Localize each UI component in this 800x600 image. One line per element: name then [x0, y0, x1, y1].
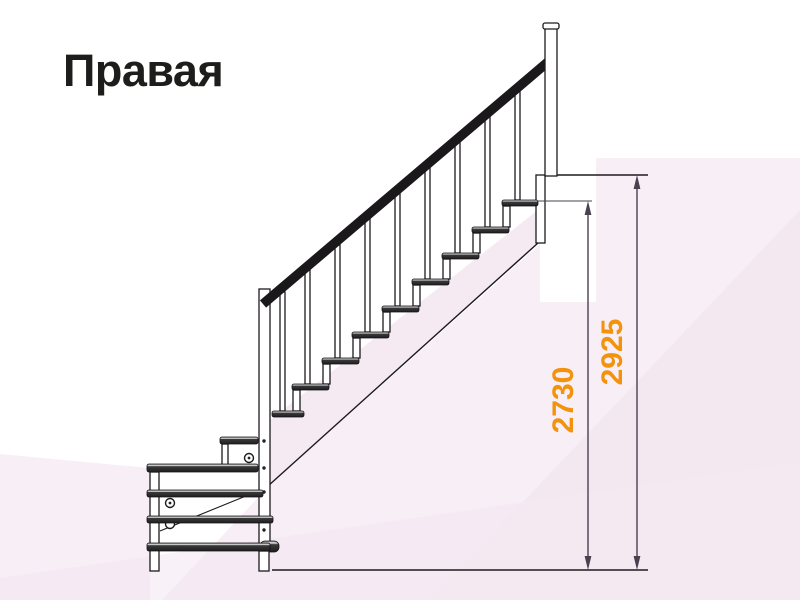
bolt-dot — [169, 502, 172, 505]
step-support — [293, 390, 300, 411]
step-support — [323, 364, 330, 384]
baluster — [395, 193, 400, 306]
tread — [502, 200, 538, 206]
newel-post — [259, 289, 270, 551]
baluster — [455, 142, 460, 253]
tread — [472, 227, 509, 233]
frame-bar — [147, 516, 273, 523]
arrow-up-icon — [585, 201, 592, 215]
step-support — [383, 312, 390, 332]
tread — [147, 490, 263, 497]
leg-post — [259, 551, 269, 571]
dimension-value-2925: 2925 — [596, 319, 629, 386]
tread — [352, 332, 389, 338]
diagram-canvas: 2730 2925 Правая — [0, 0, 800, 600]
fascia-board — [536, 175, 545, 243]
screw-dot — [262, 466, 265, 469]
baluster — [305, 270, 310, 384]
tread — [382, 306, 419, 312]
baluster — [335, 245, 340, 358]
top-newel-post — [545, 26, 557, 176]
tread — [322, 358, 359, 364]
step-support — [473, 233, 480, 253]
baluster — [365, 219, 370, 332]
screw-dot — [262, 439, 265, 442]
step-support — [503, 206, 510, 227]
tread — [442, 253, 479, 259]
dimension-value-2730: 2730 — [547, 367, 580, 434]
tread — [147, 464, 258, 472]
tread — [412, 279, 449, 285]
step-support — [222, 444, 228, 466]
baluster — [485, 116, 490, 227]
baluster — [515, 90, 520, 200]
top-newel-cap — [543, 23, 559, 29]
bolt-dot — [248, 457, 251, 460]
tread — [292, 384, 329, 390]
step-support — [353, 338, 360, 358]
step-support — [413, 285, 420, 306]
screw-dot — [262, 528, 265, 531]
step-support — [443, 259, 450, 279]
page-title: Правая — [63, 48, 223, 93]
baluster — [280, 292, 285, 411]
frame-bar — [147, 543, 270, 551]
tread — [272, 411, 304, 417]
tread — [220, 437, 258, 444]
baluster — [425, 168, 430, 279]
